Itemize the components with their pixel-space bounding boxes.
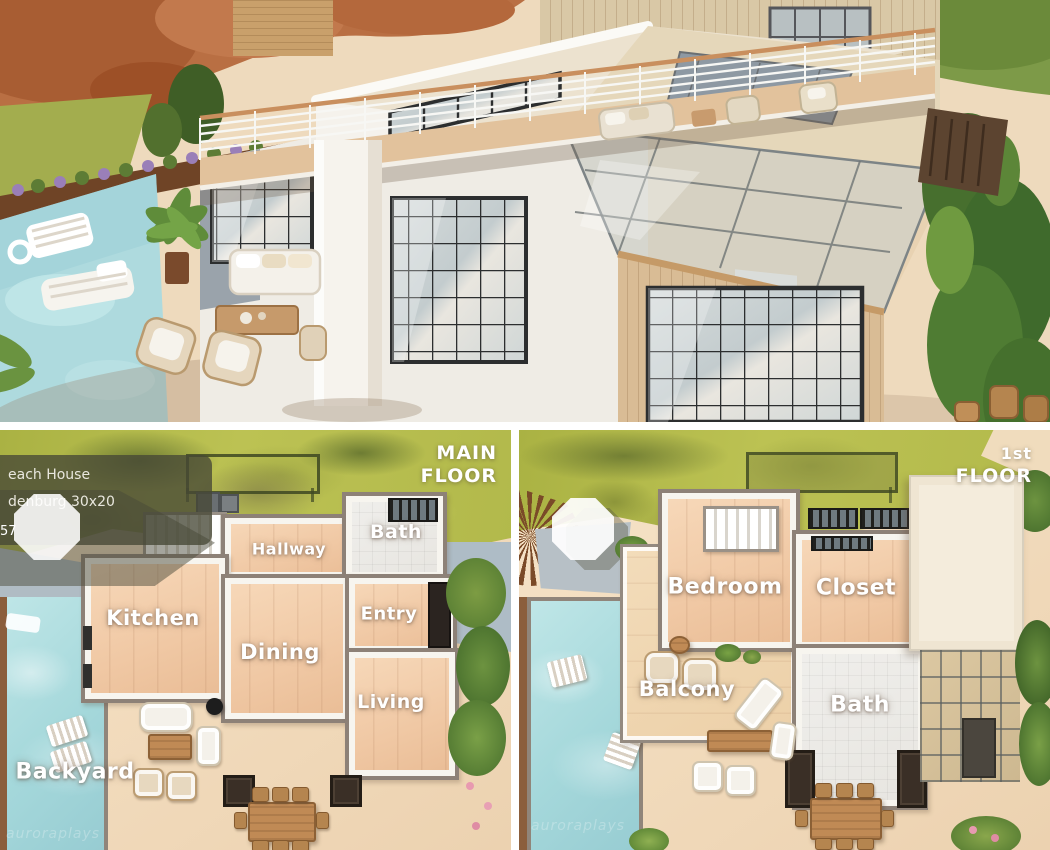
floor-tag-line1: MAIN — [421, 442, 497, 465]
chair — [292, 840, 309, 850]
flower — [969, 826, 977, 834]
sims-build-collage: each House denburg 30x20 57 Kitchen Dini… — [0, 0, 1050, 850]
kitchen-window — [83, 664, 92, 688]
flat-roof — [909, 475, 1024, 651]
chair — [815, 783, 832, 798]
roof-window — [860, 508, 910, 529]
chair — [234, 812, 247, 829]
side-table — [669, 636, 690, 654]
outdoor-dining-table — [248, 802, 316, 842]
chair — [272, 787, 289, 802]
bushes — [1015, 620, 1050, 706]
plant — [629, 828, 669, 850]
room-label-bedroom: Bedroom — [668, 575, 783, 600]
wood-slat-wall — [233, 0, 333, 56]
flower-bushes — [951, 816, 1021, 850]
room-label-bath: Bath — [370, 521, 422, 543]
armchair — [692, 761, 723, 792]
flower — [466, 782, 474, 790]
chair — [292, 787, 309, 802]
planter — [743, 650, 761, 664]
outdoor-daybed — [139, 702, 193, 732]
flower — [991, 834, 999, 842]
pool-fence — [0, 597, 7, 850]
exterior-3d-view — [0, 0, 1050, 422]
goal-post — [889, 487, 892, 503]
planter — [715, 644, 741, 662]
flower — [484, 802, 492, 810]
room-living — [345, 648, 459, 780]
wood-awning — [918, 108, 1008, 196]
goal-post — [311, 488, 314, 502]
flower — [472, 822, 480, 830]
bath-vanity — [388, 498, 438, 522]
lot-price-fragment: 57 — [0, 524, 17, 539]
kitchen-window — [83, 626, 92, 650]
chair — [272, 840, 289, 850]
ac-unit — [220, 494, 239, 513]
main-floor-panel: each House denburg 30x20 57 Kitchen Dini… — [0, 430, 511, 850]
chair — [316, 812, 329, 829]
chair — [857, 838, 874, 850]
wing-window — [648, 288, 862, 422]
flower-bushes — [452, 770, 508, 850]
creator-watermark: auroraplays — [531, 818, 625, 834]
roof-window — [808, 508, 858, 529]
room-label-balcony: Balcony — [639, 677, 735, 701]
tree-shadow — [519, 430, 729, 482]
first-floor-panel: Bedroom Closet Balcony Bath 1st FLOOR au… — [519, 430, 1050, 850]
room-label-dining: Dining — [240, 640, 320, 664]
ground-window-right — [392, 198, 526, 362]
chair — [836, 838, 853, 850]
bench — [707, 730, 773, 752]
doormat — [330, 775, 362, 807]
armchair — [133, 768, 164, 798]
chair — [836, 783, 853, 798]
floor-tag-line2: FLOOR — [956, 465, 1032, 488]
bushes — [1019, 702, 1050, 786]
outdoor-dining-table — [810, 798, 882, 840]
chair — [252, 787, 269, 802]
floor-tag-main: MAIN FLOOR — [421, 442, 497, 488]
floor-tag-line2: FLOOR — [421, 465, 497, 488]
bushes — [446, 558, 506, 628]
closet-window — [811, 536, 873, 551]
chair — [881, 810, 894, 827]
room-label-living: Living — [357, 691, 425, 713]
creator-watermark: auroraplays — [6, 826, 100, 842]
room-label-bath: Bath — [830, 693, 890, 718]
chair — [857, 783, 874, 798]
room-label-entry: Entry — [361, 604, 418, 625]
room-label-closet: Closet — [816, 576, 896, 601]
glass-roof-dark-cell — [962, 718, 996, 778]
coffee-table — [148, 734, 192, 760]
outdoor-label-backyard: Backyard — [15, 760, 134, 785]
stairs — [703, 506, 779, 552]
floor-tag-line1: 1st — [956, 442, 1032, 465]
floor-tag-first: 1st FLOOR — [956, 442, 1032, 488]
bushes — [448, 700, 506, 776]
lounge-chair — [196, 726, 221, 766]
chair — [815, 838, 832, 850]
chair — [252, 840, 269, 850]
armchair — [725, 765, 756, 796]
soccer-goal-shadow — [746, 452, 898, 493]
chair — [795, 810, 808, 827]
bushes — [456, 626, 510, 706]
grill — [206, 698, 223, 715]
room-label-kitchen: Kitchen — [106, 606, 200, 630]
room-label-hallway: Hallway — [252, 540, 326, 559]
armchair — [166, 771, 197, 801]
lot-name: each House — [8, 467, 212, 483]
pool-fence — [519, 597, 527, 850]
